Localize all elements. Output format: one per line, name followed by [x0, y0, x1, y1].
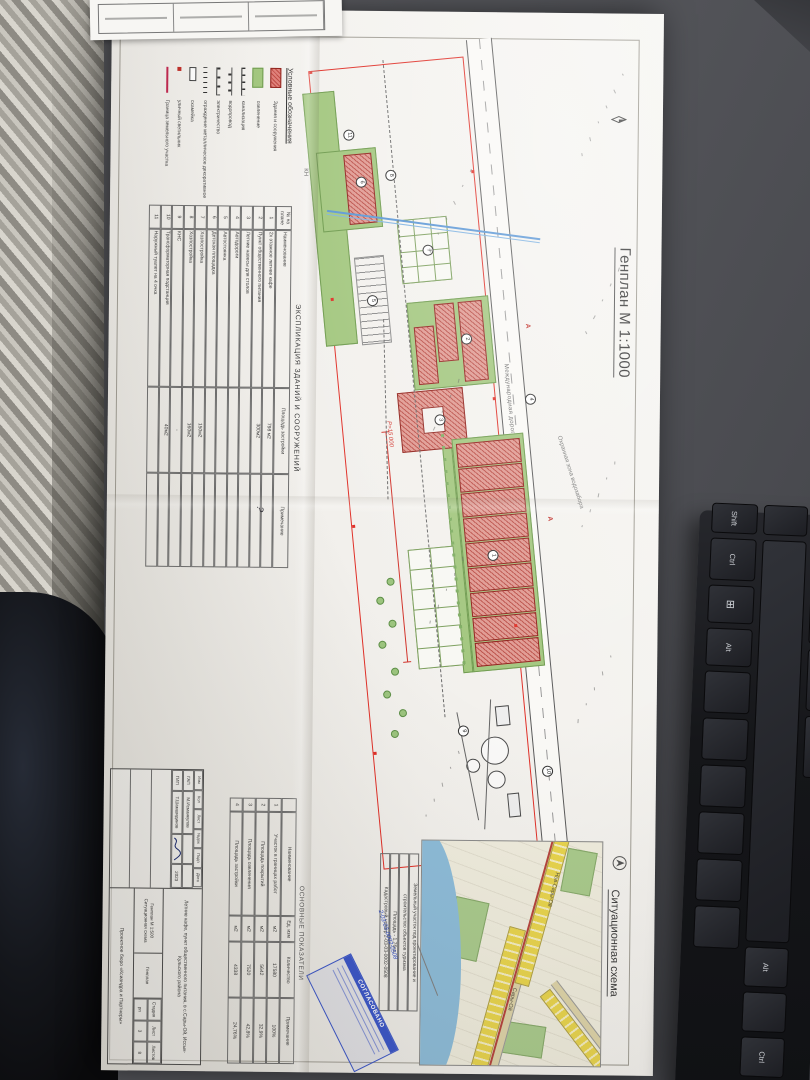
greenery-symbol-icon: [253, 68, 264, 96]
table-cell: КНС: [171, 229, 184, 387]
table-cell: 4338: [228, 941, 242, 997]
carpet-edge-shadow: [52, 0, 104, 648]
signer-role: ГАП: [183, 770, 194, 791]
alt-key: Alt: [705, 627, 753, 667]
table-cell: Лист: [193, 809, 202, 829]
design-firm: Проектное бюро «Ксиандра и Партнеры»: [108, 888, 135, 1063]
table-cell: Пункт общественного питания: [251, 230, 264, 388]
note-paper-edge: [90, 0, 343, 40]
table-cell: Площадь застройки: [229, 811, 243, 915]
north-arrow-icon: [606, 111, 627, 127]
micro-annotation: [614, 461, 615, 464]
table-cell: Детская площадка: [205, 229, 218, 387]
windows-key-icon: ⊞: [707, 584, 755, 624]
micro-annotation: [446, 589, 447, 591]
legend-item: ограждение металлическое декоративное: [201, 67, 209, 213]
micro-annotation: [606, 477, 607, 479]
lamp-symbol-icon: [178, 67, 182, 95]
blank-key: [701, 717, 749, 761]
table-cell: Кол: [194, 790, 203, 810]
doc-scale-note: Генплан М 1:500 Ситуационная схема: [134, 889, 163, 954]
signer-date: [182, 864, 193, 888]
table-cell: 100%: [266, 998, 280, 1064]
table-cell: -: [170, 387, 182, 473]
treatment-plant: [444, 695, 540, 834]
legend-item: уличный светильник: [175, 67, 183, 213]
legend-label: скамейка: [189, 100, 195, 122]
stage-col: Листов: [147, 1042, 161, 1064]
table-cell: Хозпостройка: [182, 229, 195, 387]
blank-key: [703, 670, 751, 714]
electric-symbol-icon: [216, 67, 220, 95]
table-row: Земельный участок под проектирование и: [408, 853, 419, 1011]
table-cell: Площадь застройки: [273, 388, 290, 474]
legend-label: уличный светильник: [176, 100, 182, 147]
legend-item: скамейка: [188, 67, 197, 213]
table-cell: Автодороги: [228, 229, 241, 387]
table-cell: [249, 474, 261, 568]
table-cell: [204, 387, 216, 473]
table-cell: [227, 387, 239, 473]
blank-key: [741, 991, 787, 1033]
signature-icon: [171, 834, 182, 864]
ctrl-key: Ctrl: [709, 537, 757, 581]
boundary-symbol-icon: [166, 67, 168, 95]
ctrl-key: Ctrl: [739, 1036, 785, 1078]
blank-key: [763, 505, 808, 537]
table-cell: 150м2: [193, 387, 205, 473]
blank-key: [693, 905, 741, 949]
north-arrow-icon: [607, 855, 627, 870]
table-cell: Автостоянка: [217, 229, 230, 387]
title-block: ИзмКолЛист№докПодпДата ГАП М.Исманкулов …: [107, 768, 204, 1065]
legend: Условные обозначения Здания и сооружения…: [156, 67, 293, 214]
boundary-tick: [352, 525, 355, 528]
shift-key: Shift: [711, 503, 758, 535]
legend-item: водопровод: [226, 67, 234, 213]
table-cell: 1: [269, 798, 282, 812]
plan-number-badge: 4: [524, 393, 536, 405]
table-cell: 5642: [254, 942, 268, 998]
boundary-tick: [514, 624, 517, 627]
sheet-name: Генплан: [134, 954, 162, 999]
drawing-title: Генплан М 1:1000: [613, 247, 633, 378]
table-cell: [226, 473, 238, 567]
table-cell: 42,8%: [240, 998, 254, 1064]
project-name: Летние кафе, пункт общественного питания…: [161, 889, 202, 1064]
table-cell: [146, 473, 158, 567]
table-cell: [192, 473, 204, 567]
legend-item: Граница земельного участка: [163, 67, 171, 213]
section-mark-a: А: [546, 516, 553, 521]
stage-val: 3: [133, 1020, 147, 1042]
blank-key: [697, 811, 745, 855]
blank-key: [802, 716, 810, 779]
micro-annotation: [622, 73, 624, 75]
signature: [182, 834, 193, 864]
situational-scheme-title: Ситуационная схема: [607, 889, 621, 996]
micro-annotation: [462, 557, 463, 561]
table-cell: м2: [267, 916, 280, 942]
space-bar: [745, 540, 806, 944]
genplan-sheet: Генплан М 1:1000 Международная дорога Ох…: [101, 8, 664, 1076]
stage-val: рп: [133, 999, 147, 1021]
table-cell: №док: [193, 829, 202, 849]
table-cell: Площадь - 1,76га.: [388, 853, 399, 1011]
table-cell: [215, 473, 227, 567]
table-cell: [239, 388, 251, 474]
micro-annotation: [434, 799, 435, 802]
table-cell: м2: [241, 916, 254, 942]
table-cell: Площадь покрытий: [255, 812, 269, 916]
legend-item: электричество: [214, 67, 222, 213]
legend-item: Здания и сооружения: [269, 68, 282, 214]
explication: ЭКСПЛИКАЦИЯ ЗДАНИЙ И СООРУЖЕНИЙ № на пла…: [146, 205, 302, 571]
table-cell: [261, 474, 273, 568]
building-unit: [475, 637, 541, 667]
table-cell: [157, 473, 169, 567]
boundary-tick: [493, 397, 496, 400]
legend-label: Граница земельного участка: [163, 100, 170, 166]
table-cell: Летние навесы для столов: [240, 230, 253, 388]
table-cell: [216, 387, 228, 473]
table-cell: Подп: [193, 848, 202, 868]
signer-name: Т.Шамшидинов: [171, 791, 182, 834]
keyboard: Shift Ctrl ⊞ Alt Alt Ctrl: [674, 510, 810, 1080]
fence-symbol-icon: [204, 67, 208, 95]
micro-annotation: [594, 687, 595, 690]
indicators-table: НаименованиеЕд. измКоличествоПримечание …: [227, 797, 297, 1068]
boundary-tick: [373, 752, 376, 755]
micro-annotation: [610, 655, 611, 657]
signer-row: ГАП М.Исманкулов: [182, 770, 194, 888]
table-cell: 2: [256, 798, 269, 812]
stage-col: Стадия: [147, 999, 161, 1021]
table-row: Площадь - 1,76га.: [388, 853, 399, 1011]
building-symbol-icon: [270, 68, 281, 96]
table-cell: 4: [230, 797, 243, 811]
table-cell: [147, 387, 159, 473]
micro-annotation: [426, 815, 427, 817]
sewer-symbol-icon: [241, 68, 245, 96]
table-cell: 2х этажное летнее кафе: [263, 230, 276, 388]
table-cell: м2: [254, 916, 267, 942]
building-2-plot: [406, 295, 496, 390]
table-cell: 40м2: [158, 387, 170, 473]
chair-dark-object: [0, 592, 118, 1080]
table-cell: строительство объектов туризма: [398, 853, 409, 1011]
desk-photo-scene: Генплан М 1:1000 Международная дорога Ох…: [0, 0, 810, 1080]
table-cell: [169, 473, 181, 567]
table-cell: Изм: [194, 770, 203, 790]
stage-col: Лист: [147, 1020, 161, 1042]
micro-annotation: [454, 573, 455, 576]
blank-key: [699, 764, 747, 808]
stage-grid: Стадия Лист Листов рп 3 8: [133, 999, 162, 1064]
table-cell: [238, 474, 250, 568]
table-cell: 32,9%: [253, 998, 267, 1064]
explication-table: № на планеНаименованиеПлощадь застройкиП…: [146, 205, 292, 570]
table-cell: 160м2: [181, 387, 193, 473]
legend-label: озеленение: [255, 101, 261, 128]
table-cell: Наименование: [274, 230, 292, 388]
section-mark-a: А: [524, 323, 531, 328]
legend-item: канализация: [239, 68, 247, 214]
table-cell: Примечание: [272, 474, 289, 568]
table-cell: [180, 473, 192, 567]
water-symbol-icon: [229, 67, 233, 95]
table-cell: 798 м2: [262, 388, 274, 474]
micro-annotation: [450, 767, 451, 769]
blank-key: [805, 649, 810, 712]
note-mini-table: [98, 0, 325, 34]
signer-row: ГИП Т.Шамшидинов 2023: [171, 770, 183, 888]
table-cell: 17580: [267, 942, 281, 998]
desk-corner-shadow: [740, 0, 810, 52]
building-footprint: [414, 326, 439, 386]
boundary-tick: [331, 298, 334, 301]
signer-date: 2023: [171, 864, 182, 888]
signer-name: М.Исманкулов: [182, 791, 193, 834]
table-cell: 3: [243, 798, 256, 812]
legend-label: водопровод: [227, 100, 233, 127]
micro-annotation: [437, 233, 439, 235]
legend-label: канализация: [240, 101, 246, 131]
legend-label: электричество: [215, 100, 221, 134]
legend-item: озеленение: [251, 68, 264, 214]
table-cell: м2: [228, 915, 241, 941]
table-cell: Трансформаторная подстанция: [159, 229, 172, 387]
table-cell: 300м2: [250, 388, 262, 474]
blank-key: [695, 858, 743, 902]
legend-label: ограждение металлическое декоративное: [202, 100, 209, 198]
micro-annotation: [598, 121, 600, 123]
table-cell: Участок в границах работ: [268, 812, 282, 916]
table-cell: Хозпостройка: [194, 229, 207, 387]
table-cell: 7520: [241, 942, 255, 998]
table-row: строительство объектов туризма: [398, 853, 409, 1011]
table-cell: Площадь озеленения: [242, 812, 256, 916]
bench-symbol-icon: [189, 67, 196, 95]
building-footprint: [434, 303, 459, 363]
situational-map: Нов-Сары-Ой Сары-Ой: [419, 840, 603, 1068]
table-cell: Наружный туалет на 4 очка: [148, 229, 161, 387]
alt-key: Alt: [743, 946, 789, 988]
table-cell: 24,76%: [227, 997, 241, 1063]
signer-role: ГИП: [172, 770, 183, 791]
legend-label: Здания и сооружения: [272, 101, 279, 151]
micro-annotation: [586, 703, 587, 705]
table-cell: Земельный участок под проектирование и: [408, 853, 419, 1011]
table-cell: Дата: [193, 868, 202, 888]
boundary-tick: [471, 170, 474, 173]
stage-val: 8: [133, 1042, 147, 1064]
table-cell: [203, 473, 215, 567]
